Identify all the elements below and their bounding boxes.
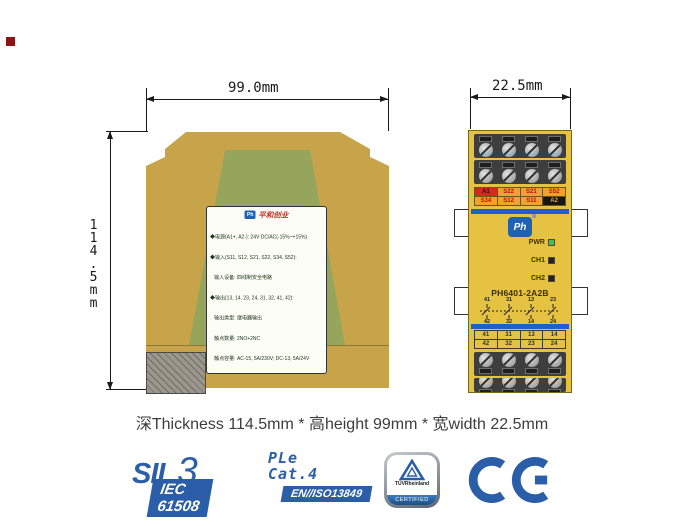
terminal-block [474, 352, 566, 376]
terminal-label: A1 [475, 188, 497, 196]
wire-slot [525, 162, 538, 168]
wire-slot [548, 389, 561, 392]
brand-logo-icon: Ph [508, 217, 532, 237]
dim-arrow-left [146, 96, 154, 102]
terminal-label: 13 [521, 331, 543, 339]
contact-symbols-diagram [476, 304, 564, 319]
dim-tick [388, 88, 389, 131]
terminal-label: S11 [521, 197, 543, 205]
terminal-unit [548, 161, 562, 183]
spec-line: ◆电源(A1+, A2-): 24V DC/AC(-15%~+15%) [210, 234, 323, 241]
terminal-unit [479, 161, 493, 183]
tuv-certified-band: CERTIFIED [387, 495, 437, 505]
terminal-unit [502, 353, 516, 375]
dim-side-height: 114.5mm [86, 218, 101, 309]
tuv-rheinland-mark: TÜVRheinland CERTIFIED [384, 452, 440, 508]
iec61508-badge: IEC 61508 [147, 479, 213, 517]
corner-marker [6, 37, 15, 46]
terminal-unit [525, 353, 539, 375]
screw-icon [525, 378, 539, 388]
wire-slot [479, 136, 492, 142]
brand-logo-icon: Ph [245, 210, 256, 219]
screw-icon [479, 143, 493, 157]
wire-slot [548, 136, 561, 142]
spec-line: 输出类型: 继电器输出 [210, 315, 323, 322]
terminal-unit [479, 378, 493, 392]
din-rail-foot [146, 352, 206, 394]
wire-slot [502, 136, 515, 142]
terminal-label: 24 [543, 340, 565, 348]
mounting-tab [570, 287, 588, 315]
cat4-line: Cat.4 [268, 466, 318, 482]
spec-sheet-page: 99.0mm 114.5mm Ph 平和创业 ◆电源(A1+, A2-): 24… [0, 0, 684, 526]
dim-arrow-right [380, 96, 388, 102]
ch2-led-icon [548, 275, 555, 282]
dim-tick [570, 88, 571, 129]
terminal-unit [479, 135, 493, 157]
terminal-label: S34 [475, 197, 497, 205]
terminal-label: S12 [498, 197, 520, 205]
tuv-triangle-icon [399, 459, 425, 481]
dim-line [146, 99, 388, 100]
ple-line: PLe [268, 450, 318, 466]
terminal-block [474, 160, 566, 184]
dim-line [470, 97, 570, 98]
terminal-unit [502, 378, 516, 392]
spec-line: ◆输出(13, 14, 23, 24, 31, 32, 41, 42): [210, 295, 323, 302]
dim-arrow-down [107, 382, 113, 390]
terminal-label: 23 [521, 340, 543, 348]
wire-slot [502, 368, 515, 374]
spec-list: ◆电源(A1+, A2-): 24V DC/AC(-15%~+15%) ◆输入(… [210, 221, 323, 375]
terminal-label: 14 [543, 331, 565, 339]
product-spec-label: Ph 平和创业 ◆电源(A1+, A2-): 24V DC/AC(-15%~+1… [206, 206, 327, 374]
spec-line: 触点容量: AC-15, 5A/230V; DC-13, 5A/24V [210, 356, 323, 363]
terminal-label: 41 [475, 331, 497, 339]
screw-icon [525, 169, 539, 183]
terminal-unit [502, 161, 516, 183]
terminal-unit [502, 135, 516, 157]
wire-slot [479, 389, 492, 392]
terminal-unit [548, 378, 562, 392]
terminal-label: S22 [498, 188, 520, 196]
screw-icon [548, 169, 562, 183]
terminal-label: 42 [475, 340, 497, 348]
led-row-ch1: CH1 [531, 257, 555, 264]
tuv-brand-text: TÜVRheinland [395, 481, 429, 487]
screw-icon [502, 169, 516, 183]
wire-slot [479, 368, 492, 374]
screw-icon [548, 353, 562, 367]
dim-arrow-up [107, 131, 113, 139]
wire-slot [502, 162, 515, 168]
wire-slot [525, 136, 538, 142]
sil3-mark: SIL 3 IEC 61508 [132, 450, 198, 492]
dim-tick [146, 88, 147, 131]
screw-icon [479, 353, 493, 367]
contact-diagram-top-numbers: 41 31 13 23 [476, 297, 564, 303]
screw-icon [548, 378, 562, 388]
trademark-dot [532, 214, 536, 218]
terminal-block [474, 378, 566, 392]
terminal-unit [525, 161, 539, 183]
wire-slot [548, 368, 561, 374]
terminal-block [474, 134, 566, 158]
spec-line: 触点数量: 2NO+2NC [210, 335, 323, 342]
ple-cat4-mark: PLe Cat.4 EN//ISO13849 [268, 450, 318, 482]
spec-line: ◆输入(S11, S12, S21, S22, S34, S52): [210, 254, 323, 261]
mounting-tab [570, 209, 588, 237]
screw-icon [502, 353, 516, 367]
wire-slot [525, 389, 538, 392]
blue-stripe [471, 209, 569, 214]
terminal-label: 31 [498, 331, 520, 339]
wire-slot [502, 389, 515, 392]
wire-slot [548, 162, 561, 168]
screw-icon [479, 169, 493, 183]
screw-icon [548, 143, 562, 157]
terminal-unit [525, 135, 539, 157]
terminal-label: S52 [543, 188, 565, 196]
led-row-ch2: CH2 [531, 275, 555, 282]
screw-icon [502, 143, 516, 157]
terminal-unit [525, 378, 539, 392]
dim-side-width: 99.0mm [228, 80, 279, 96]
wire-slot [525, 368, 538, 374]
terminal-unit [548, 135, 562, 157]
terminal-label-grid-bottom: 41 31 13 14 42 32 23 24 [474, 330, 566, 349]
screw-icon [502, 378, 516, 388]
dim-arrow-left [470, 94, 478, 100]
label-header: Ph 平和创业 [210, 209, 323, 221]
wire-slot [479, 162, 492, 168]
pwr-led-icon [548, 239, 555, 246]
ch1-led-icon [548, 257, 555, 264]
screw-icon [525, 353, 539, 367]
terminal-label-grid-top: A1 S22 S21 S52 S34 S12 S11 A2 [474, 187, 566, 206]
terminal-label: 32 [498, 340, 520, 348]
terminal-unit [548, 353, 562, 375]
front-view-module: A1 S22 S21 S52 S34 S12 S11 A2 Ph PWR CH1… [468, 130, 572, 393]
blue-stripe [471, 324, 569, 329]
screw-icon [479, 378, 493, 388]
dim-line [110, 131, 111, 389]
screw-icon [525, 143, 539, 157]
dim-arrow-right [562, 94, 570, 100]
spec-line: 输入设备: 四线制安全电路 [210, 275, 323, 282]
dimension-caption: 深Thickness 114.5mm * 高height 99mm * 宽wid… [0, 410, 684, 434]
dim-front-width: 22.5mm [492, 78, 543, 94]
iso13849-badge: EN//ISO13849 [281, 486, 373, 502]
terminal-label: S21 [521, 188, 543, 196]
ce-mark-icon [456, 454, 554, 511]
brand-name: 平和创业 [258, 209, 288, 220]
terminal-label: A2 [543, 197, 565, 205]
led-row-pwr: PWR [529, 239, 555, 246]
terminal-unit [479, 353, 493, 375]
